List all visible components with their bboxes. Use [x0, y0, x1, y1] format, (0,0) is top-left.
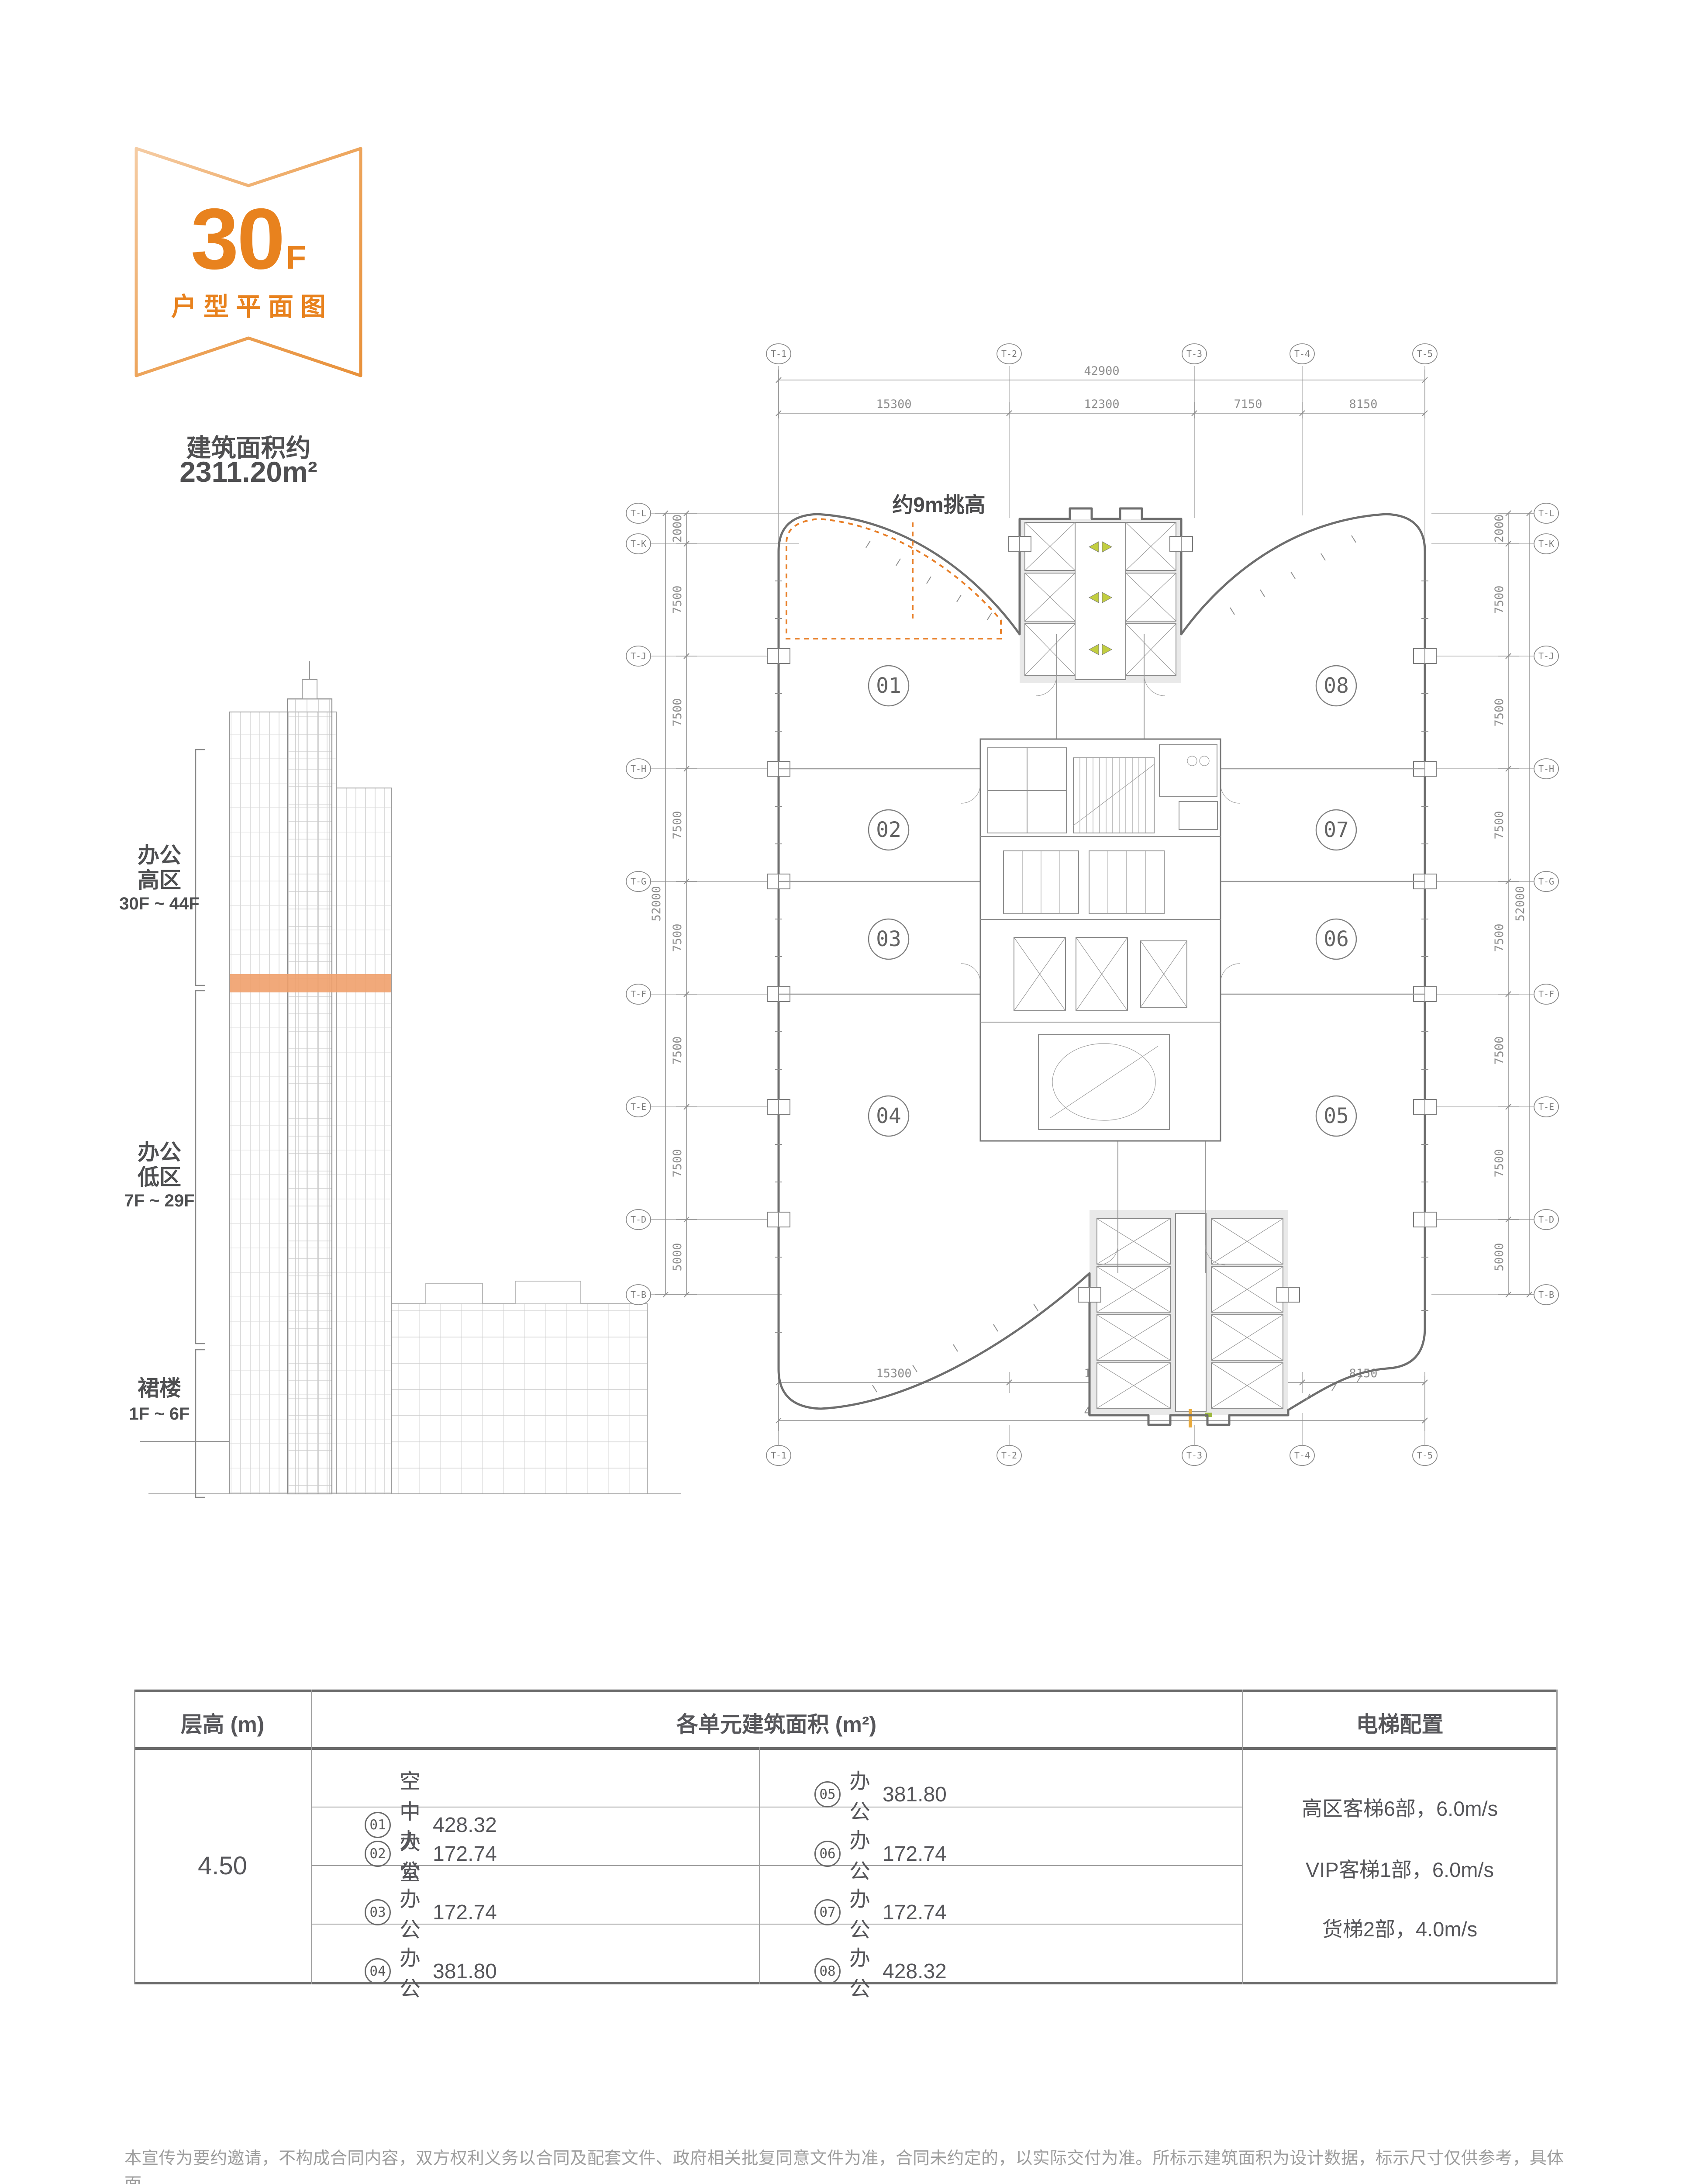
dim-seg: 5000 — [671, 1243, 684, 1271]
unit-area: 428.32 — [883, 1959, 947, 1984]
dim-seg: 7500 — [1493, 811, 1506, 839]
dim-seg: 12300 — [1084, 397, 1119, 411]
floor-30-highlight-band — [230, 974, 391, 992]
dim-seg: 2000 — [671, 514, 684, 543]
zone-low-line2: 低区 — [138, 1165, 181, 1189]
unit-number: 03 — [876, 927, 901, 951]
unit-name: 办公 — [400, 1941, 421, 2002]
table-header-floor-height: 层高 (m) — [134, 1707, 311, 1738]
dim-total-top: 42900 — [1084, 364, 1119, 378]
top-elevator-bank — [1020, 519, 1181, 683]
bottom-elevator-bank — [1090, 1210, 1288, 1427]
disclaimer: 本宣传为要约邀请，不构成合同内容，双方权利义务以合同及配套文件、政府相关批复同意… — [124, 2146, 1564, 2184]
zone-high-line2: 高区 — [138, 868, 181, 892]
unit-number: 02 — [876, 818, 901, 842]
dim-seg: 15300 — [876, 397, 911, 411]
zone-high-line1: 办公 — [138, 843, 181, 867]
unit-name: 办公 — [400, 1882, 421, 1943]
zone-low-line1: 办公 — [138, 1140, 181, 1165]
zone-low-range: 7F ~ 29F — [124, 1191, 194, 1210]
axis-bubble-label: T-H — [1538, 764, 1554, 774]
unit-badge: 05 — [814, 1781, 841, 1807]
unit-number: 01 — [876, 674, 901, 698]
dim-seg: 5000 — [1493, 1243, 1506, 1271]
axis-bubble-label: T-D — [1538, 1214, 1554, 1225]
dim-seg: 7500 — [1493, 923, 1506, 952]
badge-floor: 30 F — [136, 196, 361, 282]
double-height-zone: 约9m挑高 — [786, 494, 1001, 639]
axis-bubble-label: T-E — [631, 1102, 646, 1112]
axis-bubble-label: T-4 — [1294, 349, 1310, 359]
axis-bubble-label: T-J — [1538, 651, 1554, 661]
axis-bubble-label: T-2 — [1001, 349, 1017, 359]
dim-seg: 2000 — [1493, 514, 1506, 543]
zone-podium-name: 裙楼 — [138, 1376, 181, 1400]
floor-plan: 42900 15300 12300 7150 8150 15300 12300 … — [611, 332, 1579, 1494]
dim-seg: 7500 — [671, 1149, 684, 1177]
table-row: 06 办公 172.74 — [814, 1823, 947, 1884]
axis-bubble-label: T-4 — [1294, 1450, 1310, 1461]
table-row: 02 办公 172.74 — [365, 1823, 497, 1884]
area-note-value: 2311.20m² — [136, 455, 361, 488]
table-row: 07 办公 172.74 — [814, 1882, 947, 1943]
zone-podium-range: 1F ~ 6F — [129, 1404, 190, 1424]
tower-elevation: 办公 高区 30F ~ 44F 办公 低区 7F ~ 29F 裙楼 1F ~ 6… — [109, 651, 699, 1511]
dim-seg: 15300 — [876, 1367, 911, 1380]
dim-seg: 7500 — [671, 1036, 684, 1064]
unit-badge: 03 — [365, 1899, 391, 1925]
dim-seg: 7500 — [671, 585, 684, 614]
floor-height-value: 4.50 — [134, 1851, 311, 1880]
unit-badge: 04 — [365, 1958, 391, 1984]
dim-seg: 8150 — [1349, 397, 1377, 411]
table-row: 05 办公 381.80 — [814, 1764, 947, 1825]
axis-bubble-label: T-5 — [1417, 1450, 1433, 1461]
dim-seg: 7500 — [1493, 1036, 1506, 1064]
elevator-config-line: VIP客梯1部，6.0m/s — [1242, 1853, 1558, 1883]
axis-bubble-label: T-F — [631, 989, 646, 999]
table-row: 03 办公 172.74 — [365, 1882, 497, 1943]
disclaimer-line: 本宣传为要约邀请，不构成合同内容，双方权利义务以合同及配套文件、政府相关批复同意… — [124, 2146, 1564, 2184]
dim-total-right: 52000 — [1514, 886, 1527, 921]
page: { "badge": {"floor_number": "30", "floor… — [0, 0, 1693, 2184]
axis-bubble-label: T-G — [1538, 876, 1554, 887]
unit-badge: 06 — [814, 1841, 841, 1867]
axis-bubble-label: T-K — [1538, 539, 1554, 549]
dim-seg: 7150 — [1234, 397, 1262, 411]
elevation-brackets — [196, 750, 205, 1497]
unit-area: 172.74 — [883, 1842, 947, 1866]
axis-bubble-label: T-H — [631, 764, 646, 774]
elevation-drawing — [140, 661, 681, 1494]
table-row: 08 办公 428.32 — [814, 1941, 947, 2002]
axis-bubble-label: T-J — [631, 651, 646, 661]
dim-seg: 7500 — [1493, 1149, 1506, 1177]
axis-bubble-label: T-K — [631, 539, 646, 549]
elevator-config-line: 货梯2部，4.0m/s — [1242, 1912, 1558, 1942]
unit-area: 172.74 — [433, 1842, 497, 1866]
unit-number: 04 — [876, 1104, 901, 1128]
axis-bubble-label: T-E — [1538, 1102, 1554, 1112]
axis-bubble-label: T-F — [1538, 989, 1554, 999]
axis-bubble-label: T-1 — [771, 1450, 786, 1461]
unit-area: 172.74 — [433, 1901, 497, 1925]
unit-number: 06 — [1324, 927, 1349, 951]
table-header-unit-areas: 各单元建筑面积 (m²) — [311, 1707, 1242, 1738]
table-row: 04 办公 381.80 — [365, 1941, 497, 2002]
axis-bubble-label: T-G — [631, 876, 646, 887]
unit-badge: 07 — [814, 1899, 841, 1925]
axis-bubble-label: T-D — [631, 1214, 646, 1225]
unit-name: 办公 — [400, 1823, 421, 1884]
dim-seg: 7500 — [1493, 585, 1506, 614]
axis-bubble-label: T-3 — [1186, 349, 1202, 359]
badge-subtitle: 户型平面图 — [136, 286, 361, 323]
unit-name: 办公 — [849, 1823, 870, 1884]
axis-bubble-label: T-L — [631, 508, 646, 518]
unit-area: 381.80 — [433, 1959, 497, 1984]
dim-seg: 7500 — [671, 811, 684, 839]
badge-floor-number: 30 — [191, 196, 283, 282]
unit-number: 08 — [1324, 674, 1349, 698]
axis-bubble-label: T-1 — [771, 349, 786, 359]
core — [961, 634, 1240, 1273]
unit-badge: 02 — [365, 1841, 391, 1867]
zone-high-range: 30F ~ 44F — [119, 894, 199, 913]
unit-number: 07 — [1324, 818, 1349, 842]
unit-area: 381.80 — [883, 1783, 947, 1807]
axis-bubble-label: T-B — [1538, 1289, 1554, 1300]
unit-area: 172.74 — [883, 1901, 947, 1925]
dim-seg: 7500 — [671, 923, 684, 952]
unit-name: 办公 — [849, 1764, 870, 1825]
unit-number: 05 — [1324, 1104, 1349, 1128]
axis-bubble-label: T-3 — [1186, 1450, 1202, 1461]
survey-tick — [1189, 1409, 1192, 1427]
axis-bubble-label: T-L — [1538, 508, 1554, 518]
dim-seg: 7500 — [1493, 698, 1506, 726]
elevation-zone-labels: 办公 高区 30F ~ 44F 办公 低区 7F ~ 29F 裙楼 1F ~ 6… — [119, 843, 199, 1424]
unit-name: 办公 — [849, 1882, 870, 1943]
badge-floor-suffix: F — [286, 241, 306, 274]
unit-name: 办公 — [849, 1941, 870, 2002]
axis-bubble-label: T-5 — [1417, 349, 1433, 359]
dim-seg: 7500 — [671, 698, 684, 726]
table-header-elevators: 电梯配置 — [1242, 1707, 1558, 1738]
unit-badge: 08 — [814, 1958, 841, 1984]
dim-total-left: 52000 — [650, 886, 663, 921]
double-height-annotation: 约9m挑高 — [892, 494, 985, 517]
axis-bubble-label: T-B — [631, 1289, 646, 1300]
axis-bubble-label: T-2 — [1001, 1450, 1017, 1461]
elevator-config-line: 高区客梯6部，6.0m/s — [1242, 1792, 1558, 1822]
